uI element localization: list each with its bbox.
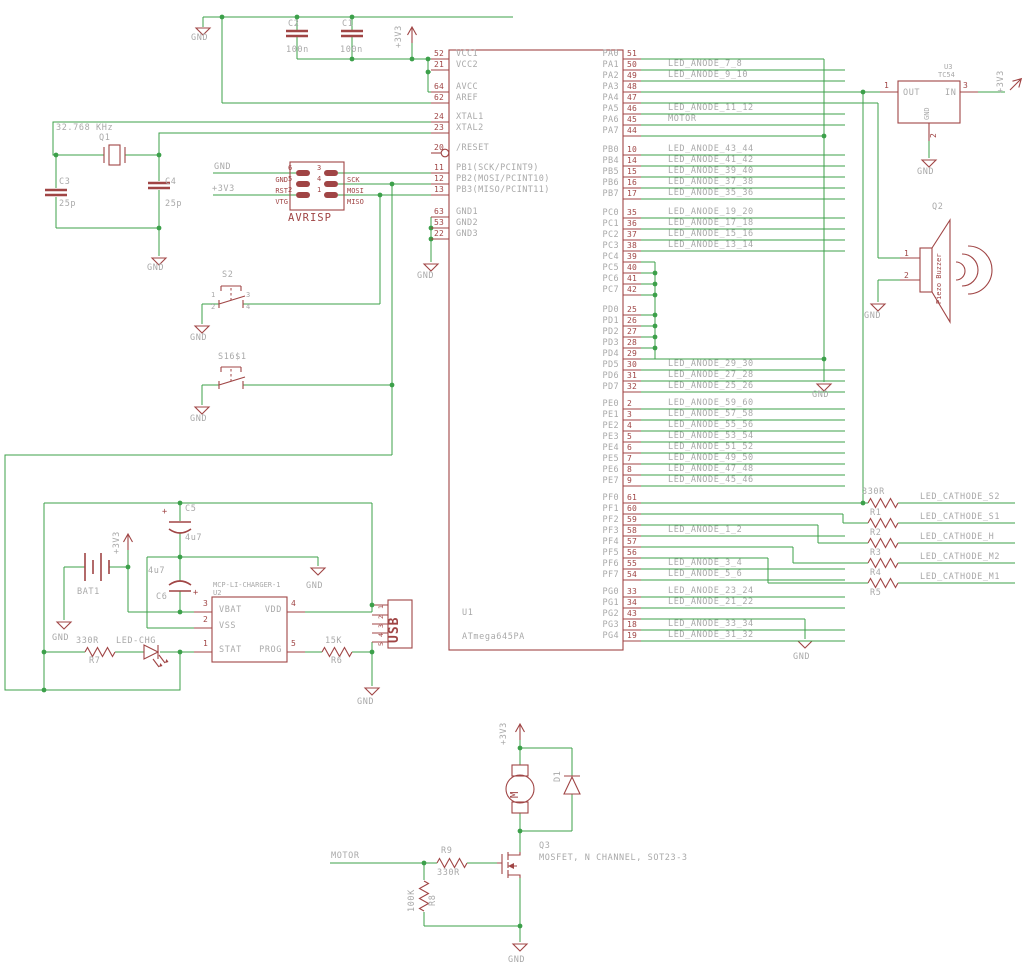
pin-number: 59 bbox=[627, 515, 637, 524]
gnd-label: GND bbox=[147, 263, 164, 273]
pin-number: 44 bbox=[627, 126, 637, 135]
pin-name: PA6 bbox=[557, 115, 619, 125]
s2-pin1: 1 bbox=[211, 290, 215, 300]
pin-name: PA2 bbox=[557, 71, 619, 81]
pin-number: 30 bbox=[627, 360, 637, 369]
pin-name: PC4 bbox=[557, 252, 619, 262]
u3-pin1: 1 bbox=[884, 81, 889, 91]
pin-number: 35 bbox=[627, 208, 637, 217]
crystal-body-icon bbox=[109, 145, 120, 165]
pin-number: 34 bbox=[627, 598, 637, 607]
r1-name: R1 bbox=[870, 508, 881, 518]
pin-name: PF5 bbox=[557, 548, 619, 558]
c6-name: C6 bbox=[156, 592, 167, 602]
net-label: LED_ANODE_55_56 bbox=[668, 420, 754, 430]
u3-gnd-pin: GND bbox=[922, 92, 932, 120]
u2-pin2: 2 bbox=[196, 615, 208, 625]
ic-pin-row: PC742 bbox=[623, 286, 1023, 297]
pin-number: 29 bbox=[627, 349, 637, 358]
pin-number: 53 bbox=[414, 218, 444, 227]
pin-number: 49 bbox=[627, 71, 637, 80]
r6-name: R6 bbox=[331, 656, 342, 666]
pin-number: 31 bbox=[627, 371, 637, 380]
pin-number: 8 bbox=[627, 465, 632, 474]
net-label: LED_ANODE_25_26 bbox=[668, 381, 754, 391]
gnd-label: GND bbox=[191, 33, 208, 43]
net-label: LED_ANODE_7_8 bbox=[668, 59, 742, 69]
pin-name: PC3 bbox=[557, 241, 619, 251]
s2-pin4: 4 bbox=[246, 302, 250, 312]
pin-name: PG0 bbox=[557, 587, 619, 597]
net-label: LED_ANODE_1_2 bbox=[668, 525, 742, 535]
pin-number: 22 bbox=[414, 229, 444, 238]
led-chg-icon bbox=[144, 645, 158, 659]
avrisp-pin3: 3 bbox=[317, 163, 321, 173]
pin-name: PG1 bbox=[557, 598, 619, 608]
pin-name: PE1 bbox=[557, 410, 619, 420]
pin-number: 17 bbox=[627, 189, 637, 198]
pin-name: /RESET bbox=[456, 143, 489, 153]
avrisp-sig-gnd: GND bbox=[262, 175, 288, 185]
pin-number: 36 bbox=[627, 219, 637, 228]
pin-number: 32 bbox=[627, 382, 637, 391]
c6-plus: + bbox=[193, 588, 199, 598]
crystal-plates-icon bbox=[104, 147, 125, 163]
avrisp-sig-rst: RST bbox=[262, 186, 288, 196]
pin-number: 13 bbox=[414, 185, 444, 194]
pin-number: 61 bbox=[627, 493, 637, 502]
ic-part-number: ATmega645PA bbox=[462, 632, 525, 642]
r7-name: R7 bbox=[89, 656, 100, 666]
pin-number: 2 bbox=[627, 399, 632, 408]
c2-value: 100n bbox=[286, 45, 309, 55]
rbank-value: 330R bbox=[862, 487, 885, 497]
pin-number: 25 bbox=[627, 305, 637, 314]
pin-number: 63 bbox=[414, 207, 444, 216]
ic-pin-row: PD328 bbox=[623, 339, 1023, 350]
r5-name: R5 bbox=[870, 588, 881, 598]
ic-pin-row: PC540 bbox=[623, 264, 1023, 275]
pin-name: PB5 bbox=[557, 167, 619, 177]
pin-number: 15 bbox=[627, 167, 637, 176]
s2-switch-icon bbox=[219, 296, 245, 308]
net-label: LED_ANODE_31_32 bbox=[668, 630, 754, 640]
pin-number: 16 bbox=[627, 178, 637, 187]
pin-name: PB7 bbox=[557, 189, 619, 199]
net-led-cathode-s2: LED_CATHODE_S2 bbox=[920, 492, 1000, 502]
led-chg-name: LED-CHG bbox=[116, 636, 156, 646]
pin-number: 26 bbox=[627, 316, 637, 325]
r9-resistor-icon bbox=[437, 859, 467, 868]
c1-name: C1 bbox=[342, 19, 353, 29]
pin-name: PD1 bbox=[557, 316, 619, 326]
pin-number: 12 bbox=[414, 174, 444, 183]
net-label: LED_ANODE_11_12 bbox=[668, 103, 754, 113]
pin-name: PA7 bbox=[557, 126, 619, 136]
r8-value: 100K bbox=[407, 878, 417, 912]
ic-pin-row: PA744 bbox=[623, 127, 1023, 138]
r6-value: 15K bbox=[325, 636, 342, 646]
pin-number: 14 bbox=[627, 156, 637, 165]
s16-name: S16$1 bbox=[218, 352, 247, 362]
pin-number: 48 bbox=[627, 82, 637, 91]
buzzer-refdes: Q2 bbox=[932, 202, 943, 212]
pin-name: PA1 bbox=[557, 60, 619, 70]
pin-number: 11 bbox=[414, 163, 444, 172]
gnd-label: GND bbox=[52, 633, 69, 643]
pin-name: AREF bbox=[456, 93, 478, 103]
net-label: LED_ANODE_35_36 bbox=[668, 188, 754, 198]
pin-number: 9 bbox=[627, 476, 632, 485]
pin-number: 21 bbox=[414, 60, 444, 69]
net-label: LED_ANODE_3_4 bbox=[668, 558, 742, 568]
ic-pin-row: PC439 bbox=[623, 253, 1023, 264]
pin-name: PF6 bbox=[557, 559, 619, 569]
usb-pin1: 1 bbox=[376, 600, 386, 609]
net-label: LED_ANODE_15_16 bbox=[668, 229, 754, 239]
r4-name: R4 bbox=[870, 568, 881, 578]
pin-number: 37 bbox=[627, 230, 637, 239]
buzzer-pin1: 1 bbox=[904, 249, 909, 259]
net-label: LED_ANODE_21_22 bbox=[668, 597, 754, 607]
pin-name: PC5 bbox=[557, 263, 619, 273]
pin-name: GND2 bbox=[456, 218, 478, 228]
pin-name: PE2 bbox=[557, 421, 619, 431]
net-led-cathode-m2: LED_CATHODE_M2 bbox=[920, 552, 1000, 562]
net-label: LED_ANODE_45_46 bbox=[668, 475, 754, 485]
usb-pin5: 5 bbox=[376, 637, 386, 646]
pin-number: 33 bbox=[627, 587, 637, 596]
c5-cap-icon bbox=[169, 522, 191, 533]
pin-name: PD0 bbox=[557, 305, 619, 315]
pin-name: PB6 bbox=[557, 178, 619, 188]
net-label: LED_ANODE_43_44 bbox=[668, 144, 754, 154]
net-label: LED_ANODE_27_28 bbox=[668, 370, 754, 380]
gnd-label: GND bbox=[864, 311, 881, 321]
pin-name: PD2 bbox=[557, 327, 619, 337]
c4-value: 25p bbox=[165, 199, 182, 209]
bat1-name: BAT1 bbox=[77, 587, 100, 597]
net-label: LED_ANODE_5_6 bbox=[668, 569, 742, 579]
gnd-label: GND bbox=[917, 167, 934, 177]
pin-number: 64 bbox=[414, 82, 444, 91]
c5-value: 4u7 bbox=[185, 533, 202, 543]
pin-name: PB4 bbox=[557, 156, 619, 166]
u3-in-pin: IN bbox=[945, 88, 956, 98]
pin-number: 58 bbox=[627, 526, 637, 535]
pin-number: 42 bbox=[627, 285, 637, 294]
net-label: LED_ANODE_49_50 bbox=[668, 453, 754, 463]
pin-name: PB2(MOSI/PCINT10) bbox=[456, 174, 550, 184]
u3-pin2: 2 bbox=[929, 126, 939, 138]
pin-name: PC7 bbox=[557, 285, 619, 295]
pin-number: 23 bbox=[414, 123, 444, 132]
pin-name: PE5 bbox=[557, 454, 619, 464]
ic-pin-row: PE79LED_ANODE_45_46 bbox=[623, 477, 1023, 488]
pin-number: 41 bbox=[627, 274, 637, 283]
pin-number: 57 bbox=[627, 537, 637, 546]
pin-name: AVCC bbox=[456, 82, 478, 92]
buzzer-value: Piezo Buzzer bbox=[934, 238, 944, 304]
pin-name: XTAL2 bbox=[456, 123, 484, 133]
c6-value: 4u7 bbox=[148, 566, 165, 576]
pin-number: 6 bbox=[627, 443, 632, 452]
ic-pin-row: PD126 bbox=[623, 317, 1023, 328]
pin-name: GND3 bbox=[456, 229, 478, 239]
v33-arrow-icon bbox=[408, 27, 417, 43]
pin-name: PC0 bbox=[557, 208, 619, 218]
pin-number: 39 bbox=[627, 252, 637, 261]
pin-number: 24 bbox=[414, 112, 444, 121]
c5-name: C5 bbox=[185, 504, 196, 514]
r8-name: R8 bbox=[428, 884, 438, 906]
pin-number: 3 bbox=[627, 410, 632, 419]
pin-name: PA4 bbox=[557, 93, 619, 103]
pin-name: PE6 bbox=[557, 465, 619, 475]
net-led-cathode-h: LED_CATHODE_H bbox=[920, 532, 994, 542]
ic-refdes: U1 bbox=[462, 608, 473, 618]
v33-label: +3V3 bbox=[112, 516, 122, 554]
net-label: LED_ANODE_51_52 bbox=[668, 442, 754, 452]
pin-name: PB3(MISO/PCINT11) bbox=[456, 185, 550, 195]
v33-label: +3V3 bbox=[499, 707, 509, 745]
gnd-label: GND bbox=[812, 390, 829, 400]
net-label: LED_ANODE_47_48 bbox=[668, 464, 754, 474]
usb-name: USB bbox=[390, 607, 400, 643]
buzzer-pin2: 2 bbox=[904, 271, 909, 281]
pin-name: PC2 bbox=[557, 230, 619, 240]
c4-name: C4 bbox=[165, 177, 176, 187]
ic-pin-row: PD025 bbox=[623, 306, 1023, 317]
pin-name: PC6 bbox=[557, 274, 619, 284]
pin-name: PF3 bbox=[557, 526, 619, 536]
net-label: LED_ANODE_29_30 bbox=[668, 359, 754, 369]
c6-cap-icon bbox=[169, 581, 191, 591]
v33-net-label: +3V3 bbox=[212, 184, 235, 194]
u2-vdd-pin: VDD bbox=[254, 605, 282, 615]
pin-number: 28 bbox=[627, 338, 637, 347]
net-label: LED_ANODE_57_58 bbox=[668, 409, 754, 419]
pin-number: 5 bbox=[627, 432, 632, 441]
s16-switch-icon bbox=[219, 377, 245, 389]
u2-pin5: 5 bbox=[291, 639, 296, 649]
v33-arrow-icon bbox=[516, 724, 525, 740]
pin-name: PE7 bbox=[557, 476, 619, 486]
net-label: LED_ANODE_33_34 bbox=[668, 619, 754, 629]
r9-name: R9 bbox=[441, 846, 452, 856]
pin-number: 40 bbox=[627, 263, 637, 272]
pin-number: 47 bbox=[627, 93, 637, 102]
net-label: LED_ANODE_23_24 bbox=[668, 586, 754, 596]
pin-number: 52 bbox=[414, 49, 444, 58]
pin-number: 7 bbox=[627, 454, 632, 463]
capacitor-plates bbox=[45, 31, 363, 195]
net-label: LED_ANODE_9_10 bbox=[668, 70, 748, 80]
crystal-value: 32.768 KHz bbox=[56, 123, 113, 133]
s2-name: S2 bbox=[222, 270, 233, 280]
pin-number: 43 bbox=[627, 609, 637, 618]
avrisp-name: AVRISP bbox=[288, 213, 332, 223]
d1-name: D1 bbox=[553, 762, 563, 782]
ic-pin-row: PD227 bbox=[623, 328, 1023, 339]
pin-number: 46 bbox=[627, 104, 637, 113]
pin-name: PB1(SCK/PCINT9) bbox=[456, 163, 539, 173]
pin-name: GND1 bbox=[456, 207, 478, 217]
net-label: LED_ANODE_39_40 bbox=[668, 166, 754, 176]
pin-number: 50 bbox=[627, 60, 637, 69]
net-label: LED_ANODE_53_54 bbox=[668, 431, 754, 441]
avrisp-sig-vtg: VTG bbox=[262, 197, 288, 207]
s2-pin3: 3 bbox=[246, 290, 250, 300]
pin-name: PD5 bbox=[557, 360, 619, 370]
pin-name: PD6 bbox=[557, 371, 619, 381]
usb-pin3: 3 bbox=[376, 619, 386, 628]
pin-name: PG3 bbox=[557, 620, 619, 630]
avrisp-pin5: 5 bbox=[288, 174, 292, 184]
led-arrows-icon bbox=[153, 655, 165, 667]
s2-pin2: 2 bbox=[211, 302, 215, 312]
net-label: LED_ANODE_19_20 bbox=[668, 207, 754, 217]
usb-pin2: 2 bbox=[376, 610, 386, 619]
u2-pin4: 4 bbox=[291, 599, 296, 609]
pin-number: 38 bbox=[627, 241, 637, 250]
pin-number: 10 bbox=[627, 145, 637, 154]
pin-number: 54 bbox=[627, 570, 637, 579]
net-label: LED_ANODE_13_14 bbox=[668, 240, 754, 250]
ic-pin-row: PC641 bbox=[623, 275, 1023, 286]
pin-name: PF4 bbox=[557, 537, 619, 547]
gnd-net-label: GND bbox=[214, 162, 231, 172]
pin-name: PE0 bbox=[557, 399, 619, 409]
u2-refdes: U2 bbox=[213, 588, 221, 598]
crystal-name: Q1 bbox=[99, 133, 110, 143]
ic-pin-row: PG134LED_ANODE_21_22 bbox=[623, 599, 1023, 610]
u2-prog-pin: PROG bbox=[242, 645, 282, 655]
c1-value: 100n bbox=[340, 45, 363, 55]
net-led-cathode-s1: LED_CATHODE_S1 bbox=[920, 512, 1000, 522]
v33-label: +3V3 bbox=[996, 55, 1006, 93]
r9-value: 330R bbox=[437, 868, 460, 878]
avrisp-pin1: 1 bbox=[317, 185, 321, 195]
r7-value: 330R bbox=[76, 636, 99, 646]
pin-name: PA5 bbox=[557, 104, 619, 114]
c2-name: C2 bbox=[288, 19, 299, 29]
pin-name: VCC1 bbox=[456, 49, 478, 59]
net-label: MOTOR bbox=[668, 114, 697, 124]
gnd-label: GND bbox=[357, 697, 374, 707]
ic-pin-row: PG419LED_ANODE_31_32 bbox=[623, 632, 1023, 643]
u3-out-pin: OUT bbox=[903, 88, 920, 98]
net-label: LED_ANODE_37_38 bbox=[668, 177, 754, 187]
net-label: LED_ANODE_59_60 bbox=[668, 398, 754, 408]
avrisp-pin6: 6 bbox=[288, 163, 292, 173]
c5-plus: + bbox=[162, 507, 168, 517]
u2-pin1: 1 bbox=[196, 639, 208, 649]
pin-name: PC1 bbox=[557, 219, 619, 229]
pin-number: 62 bbox=[414, 93, 444, 102]
ic-pin-row: PC338LED_ANODE_13_14 bbox=[623, 242, 1023, 253]
u2-stat-pin: STAT bbox=[219, 645, 242, 655]
r2-name: R2 bbox=[870, 528, 881, 538]
gnd-label: GND bbox=[190, 414, 207, 424]
u2-vbat-pin: VBAT bbox=[219, 605, 242, 615]
pin-name: PF0 bbox=[557, 493, 619, 503]
avrisp-sig-mosi: MOSI bbox=[347, 186, 364, 196]
pin-name: PA3 bbox=[557, 82, 619, 92]
avrisp-sig-sck: SCK bbox=[347, 175, 360, 185]
q3-description: MOSFET, N CHANNEL, SOT23-3 bbox=[539, 853, 688, 863]
pin-name: PA0 bbox=[557, 49, 619, 59]
net-label: LED_ANODE_41_42 bbox=[668, 155, 754, 165]
q3-refdes: Q3 bbox=[539, 841, 550, 851]
gnd-label: GND bbox=[508, 955, 525, 965]
net-label: LED_ANODE_17_18 bbox=[668, 218, 754, 228]
pin-name: PF1 bbox=[557, 504, 619, 514]
r3-name: R3 bbox=[870, 548, 881, 558]
gnd-label: GND bbox=[793, 652, 810, 662]
u2-vss-pin: VSS bbox=[219, 621, 236, 631]
usb-pin4: 4 bbox=[376, 628, 386, 637]
motor-net-label: MOTOR bbox=[331, 851, 360, 861]
pin-name: PB0 bbox=[557, 145, 619, 155]
pin-number: 45 bbox=[627, 115, 637, 124]
schematic-page: { "labels": { "gnd": "GND", "v33": "+3V3… bbox=[0, 0, 1024, 975]
battery-icon bbox=[85, 553, 109, 581]
pin-name: PF7 bbox=[557, 570, 619, 580]
u2-part: MCP-LI-CHARGER-1 bbox=[213, 580, 280, 590]
pin-name: PG4 bbox=[557, 631, 619, 641]
pin-name: PE3 bbox=[557, 432, 619, 442]
pin-number: 18 bbox=[627, 620, 637, 629]
pin-number: 27 bbox=[627, 327, 637, 336]
ic-pin-row: PA645MOTOR bbox=[623, 116, 1023, 127]
ic-pin-row: PB717LED_ANODE_35_36 bbox=[623, 190, 1023, 201]
u3-pin3: 3 bbox=[963, 81, 968, 91]
pin-name: PD7 bbox=[557, 382, 619, 392]
gnd-label: GND bbox=[190, 333, 207, 343]
avrisp-pin2: 2 bbox=[288, 185, 292, 195]
v33-arrow-icon bbox=[124, 534, 133, 550]
pin-name: PD4 bbox=[557, 349, 619, 359]
u3-part: TC54 bbox=[938, 70, 955, 80]
u2-pin3: 3 bbox=[196, 599, 208, 609]
pin-number: 4 bbox=[627, 421, 632, 430]
avrisp-sig-miso: MISO bbox=[347, 197, 364, 207]
pin-number: 60 bbox=[627, 504, 637, 513]
v33-label: +3V3 bbox=[394, 12, 404, 48]
c3-name: C3 bbox=[59, 177, 70, 187]
pin-name: XTAL1 bbox=[456, 112, 484, 122]
avrisp-pin4: 4 bbox=[317, 174, 321, 184]
pin-name: PF2 bbox=[557, 515, 619, 525]
d1-diode-icon bbox=[564, 776, 580, 794]
pin-name: PD3 bbox=[557, 338, 619, 348]
net-led-cathode-m1: LED_CATHODE_M1 bbox=[920, 572, 1000, 582]
motor-letter: M bbox=[510, 780, 520, 798]
c3-value: 25p bbox=[59, 199, 76, 209]
pin-name: PE4 bbox=[557, 443, 619, 453]
gnd-label: GND bbox=[306, 581, 323, 591]
pin-name: PG2 bbox=[557, 609, 619, 619]
gnd-label: GND bbox=[417, 271, 434, 281]
pin-number: 20 bbox=[414, 143, 444, 152]
q3-mosfet-icon bbox=[497, 852, 520, 878]
pin-number: 19 bbox=[627, 631, 637, 640]
pin-number: 56 bbox=[627, 548, 637, 557]
pin-name: VCC2 bbox=[456, 60, 478, 70]
pin-number: 55 bbox=[627, 559, 637, 568]
pin-number: 51 bbox=[627, 49, 637, 58]
